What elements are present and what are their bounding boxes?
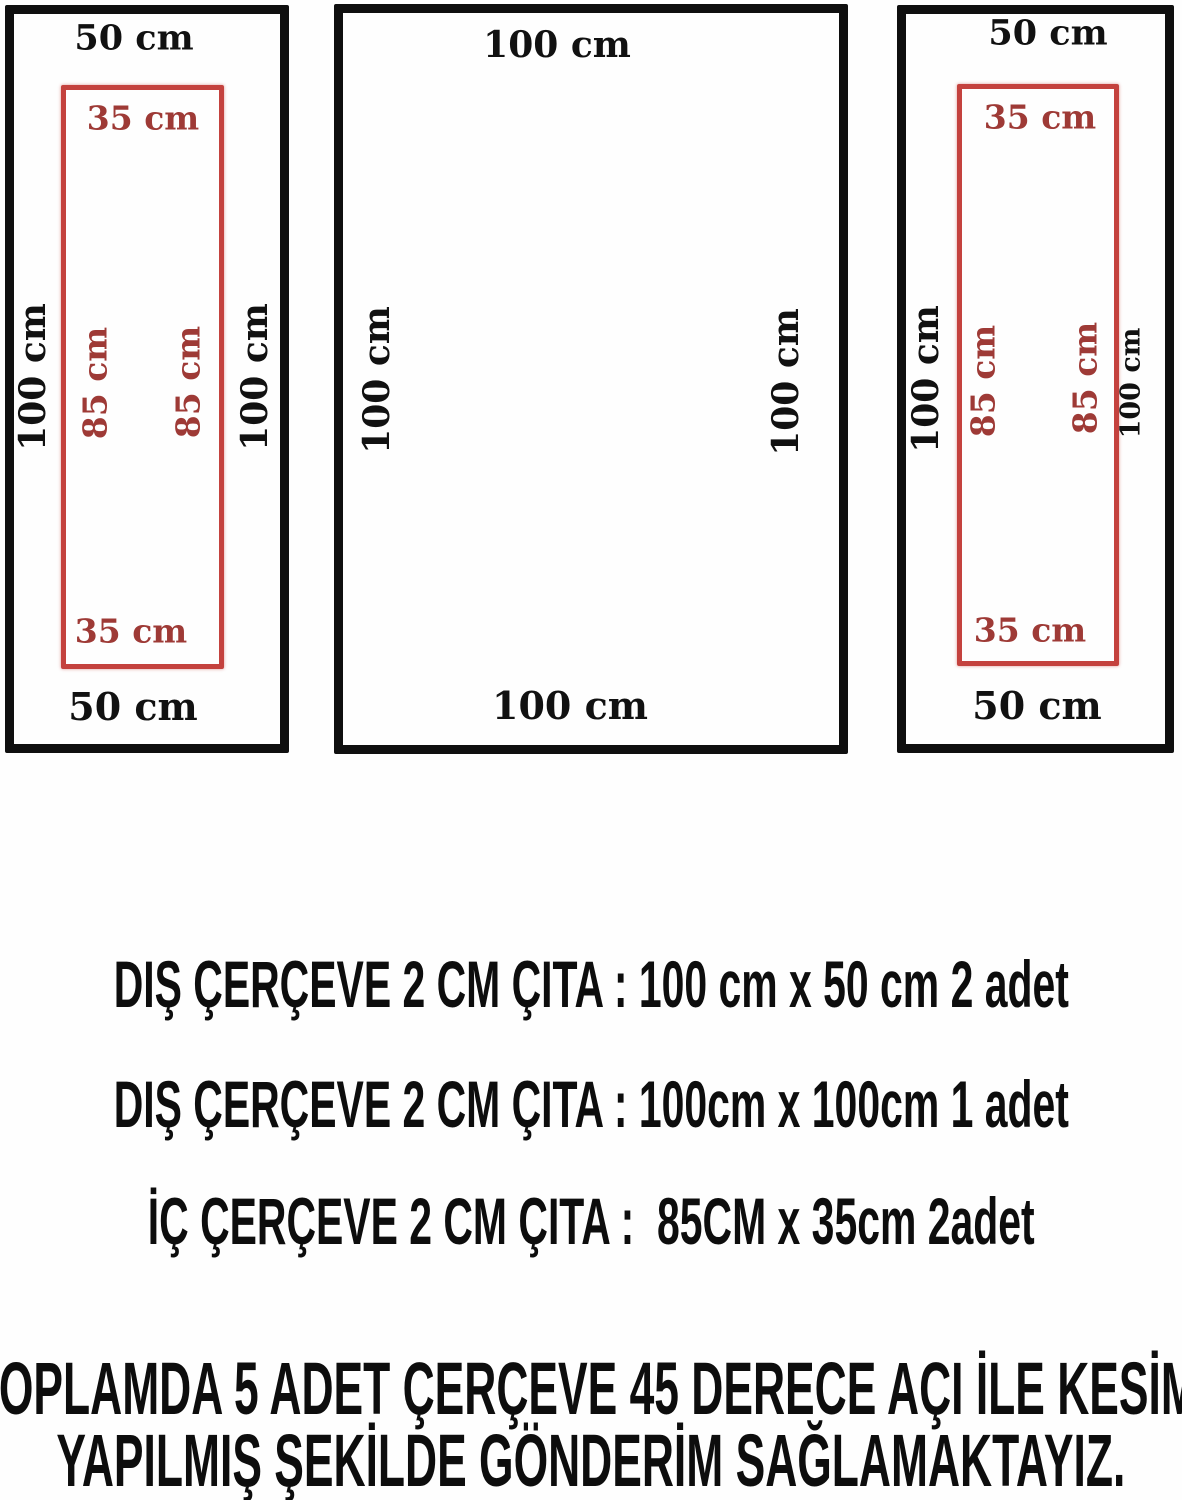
left-inner-top-dimension: 35 cm [87, 102, 199, 135]
footer-note-line-2: YAPILMIŞ ŞEKİLDE GÖNDERİM SAĞLAMAKTAYIZ. [0, 1424, 1182, 1498]
left-inner-right-dimension: 85 cm [172, 326, 205, 438]
right-frame-right-dimension: 100 cm [1118, 328, 1145, 439]
middle-frame-top-dimension: 100 cm [483, 27, 631, 63]
right-inner-top-dimension: 35 cm [984, 101, 1096, 134]
footer-note-line-2-text: YAPILMIŞ ŞEKİLDE GÖNDERİM SAĞLAMAKTAYIZ. [57, 1424, 1126, 1498]
left-frame-bottom-dimension: 50 cm [68, 688, 197, 726]
left-frame-right-dimension: 100 cm [237, 303, 273, 451]
middle-frame-right-dimension: 100 cm [768, 308, 804, 456]
frame-cutting-diagram: 50 cm 35 cm 100 cm 85 cm 85 cm 100 cm 35… [0, 0, 1182, 1500]
spec-line-outer-frame-50: DIŞ ÇERÇEVE 2 CM ÇITA : 100 cm x 50 cm 2… [0, 951, 1182, 1017]
right-inner-bottom-dimension: 35 cm [974, 614, 1086, 647]
right-inner-right-dimension: 85 cm [1069, 322, 1102, 434]
footer-note-line-1: TOPLAMDA 5 ADET ÇERÇEVE 45 DERECE AÇI İL… [0, 1352, 1182, 1426]
middle-frame-bottom-dimension: 100 cm [492, 687, 648, 725]
left-frame-left-dimension: 100 cm [15, 303, 51, 451]
spec-line-inner-frame-85-text: İÇ ÇERÇEVE 2 CM ÇITA : 85CM x 35cm 2adet [148, 1188, 1035, 1254]
middle-frame-left-dimension: 100 cm [359, 306, 395, 454]
spec-line-outer-frame-100-text: DIŞ ÇERÇEVE 2 CM ÇITA : 100cm x 100cm 1 … [113, 1071, 1068, 1137]
right-inner-left-dimension: 85 cm [967, 325, 1000, 437]
left-inner-bottom-dimension: 35 cm [75, 615, 187, 648]
left-inner-left-dimension: 85 cm [79, 327, 112, 439]
spec-line-outer-frame-50-text: DIŞ ÇERÇEVE 2 CM ÇITA : 100 cm x 50 cm 2… [113, 951, 1068, 1017]
right-frame-top-dimension: 50 cm [988, 16, 1107, 51]
right-frame-left-dimension: 100 cm [908, 305, 944, 453]
spec-line-inner-frame-85: İÇ ÇERÇEVE 2 CM ÇITA : 85CM x 35cm 2adet [0, 1188, 1182, 1254]
left-frame-top-dimension: 50 cm [74, 21, 193, 56]
spec-line-outer-frame-100: DIŞ ÇERÇEVE 2 CM ÇITA : 100cm x 100cm 1 … [0, 1071, 1182, 1137]
footer-note-line-1-text: TOPLAMDA 5 ADET ÇERÇEVE 45 DERECE AÇI İL… [0, 1352, 1182, 1426]
right-frame-bottom-dimension: 50 cm [972, 687, 1101, 725]
